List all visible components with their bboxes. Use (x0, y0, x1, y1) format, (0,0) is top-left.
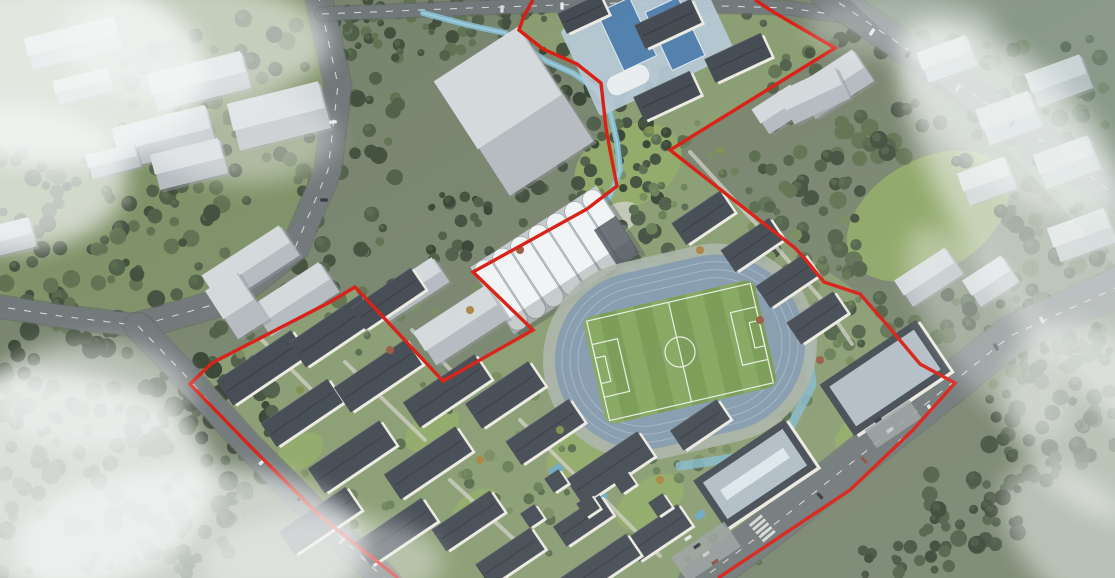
rendering-scene (0, 0, 1115, 578)
aerial-masterplan-rendering (0, 0, 1115, 578)
atmosphere-tint (0, 0, 1115, 578)
